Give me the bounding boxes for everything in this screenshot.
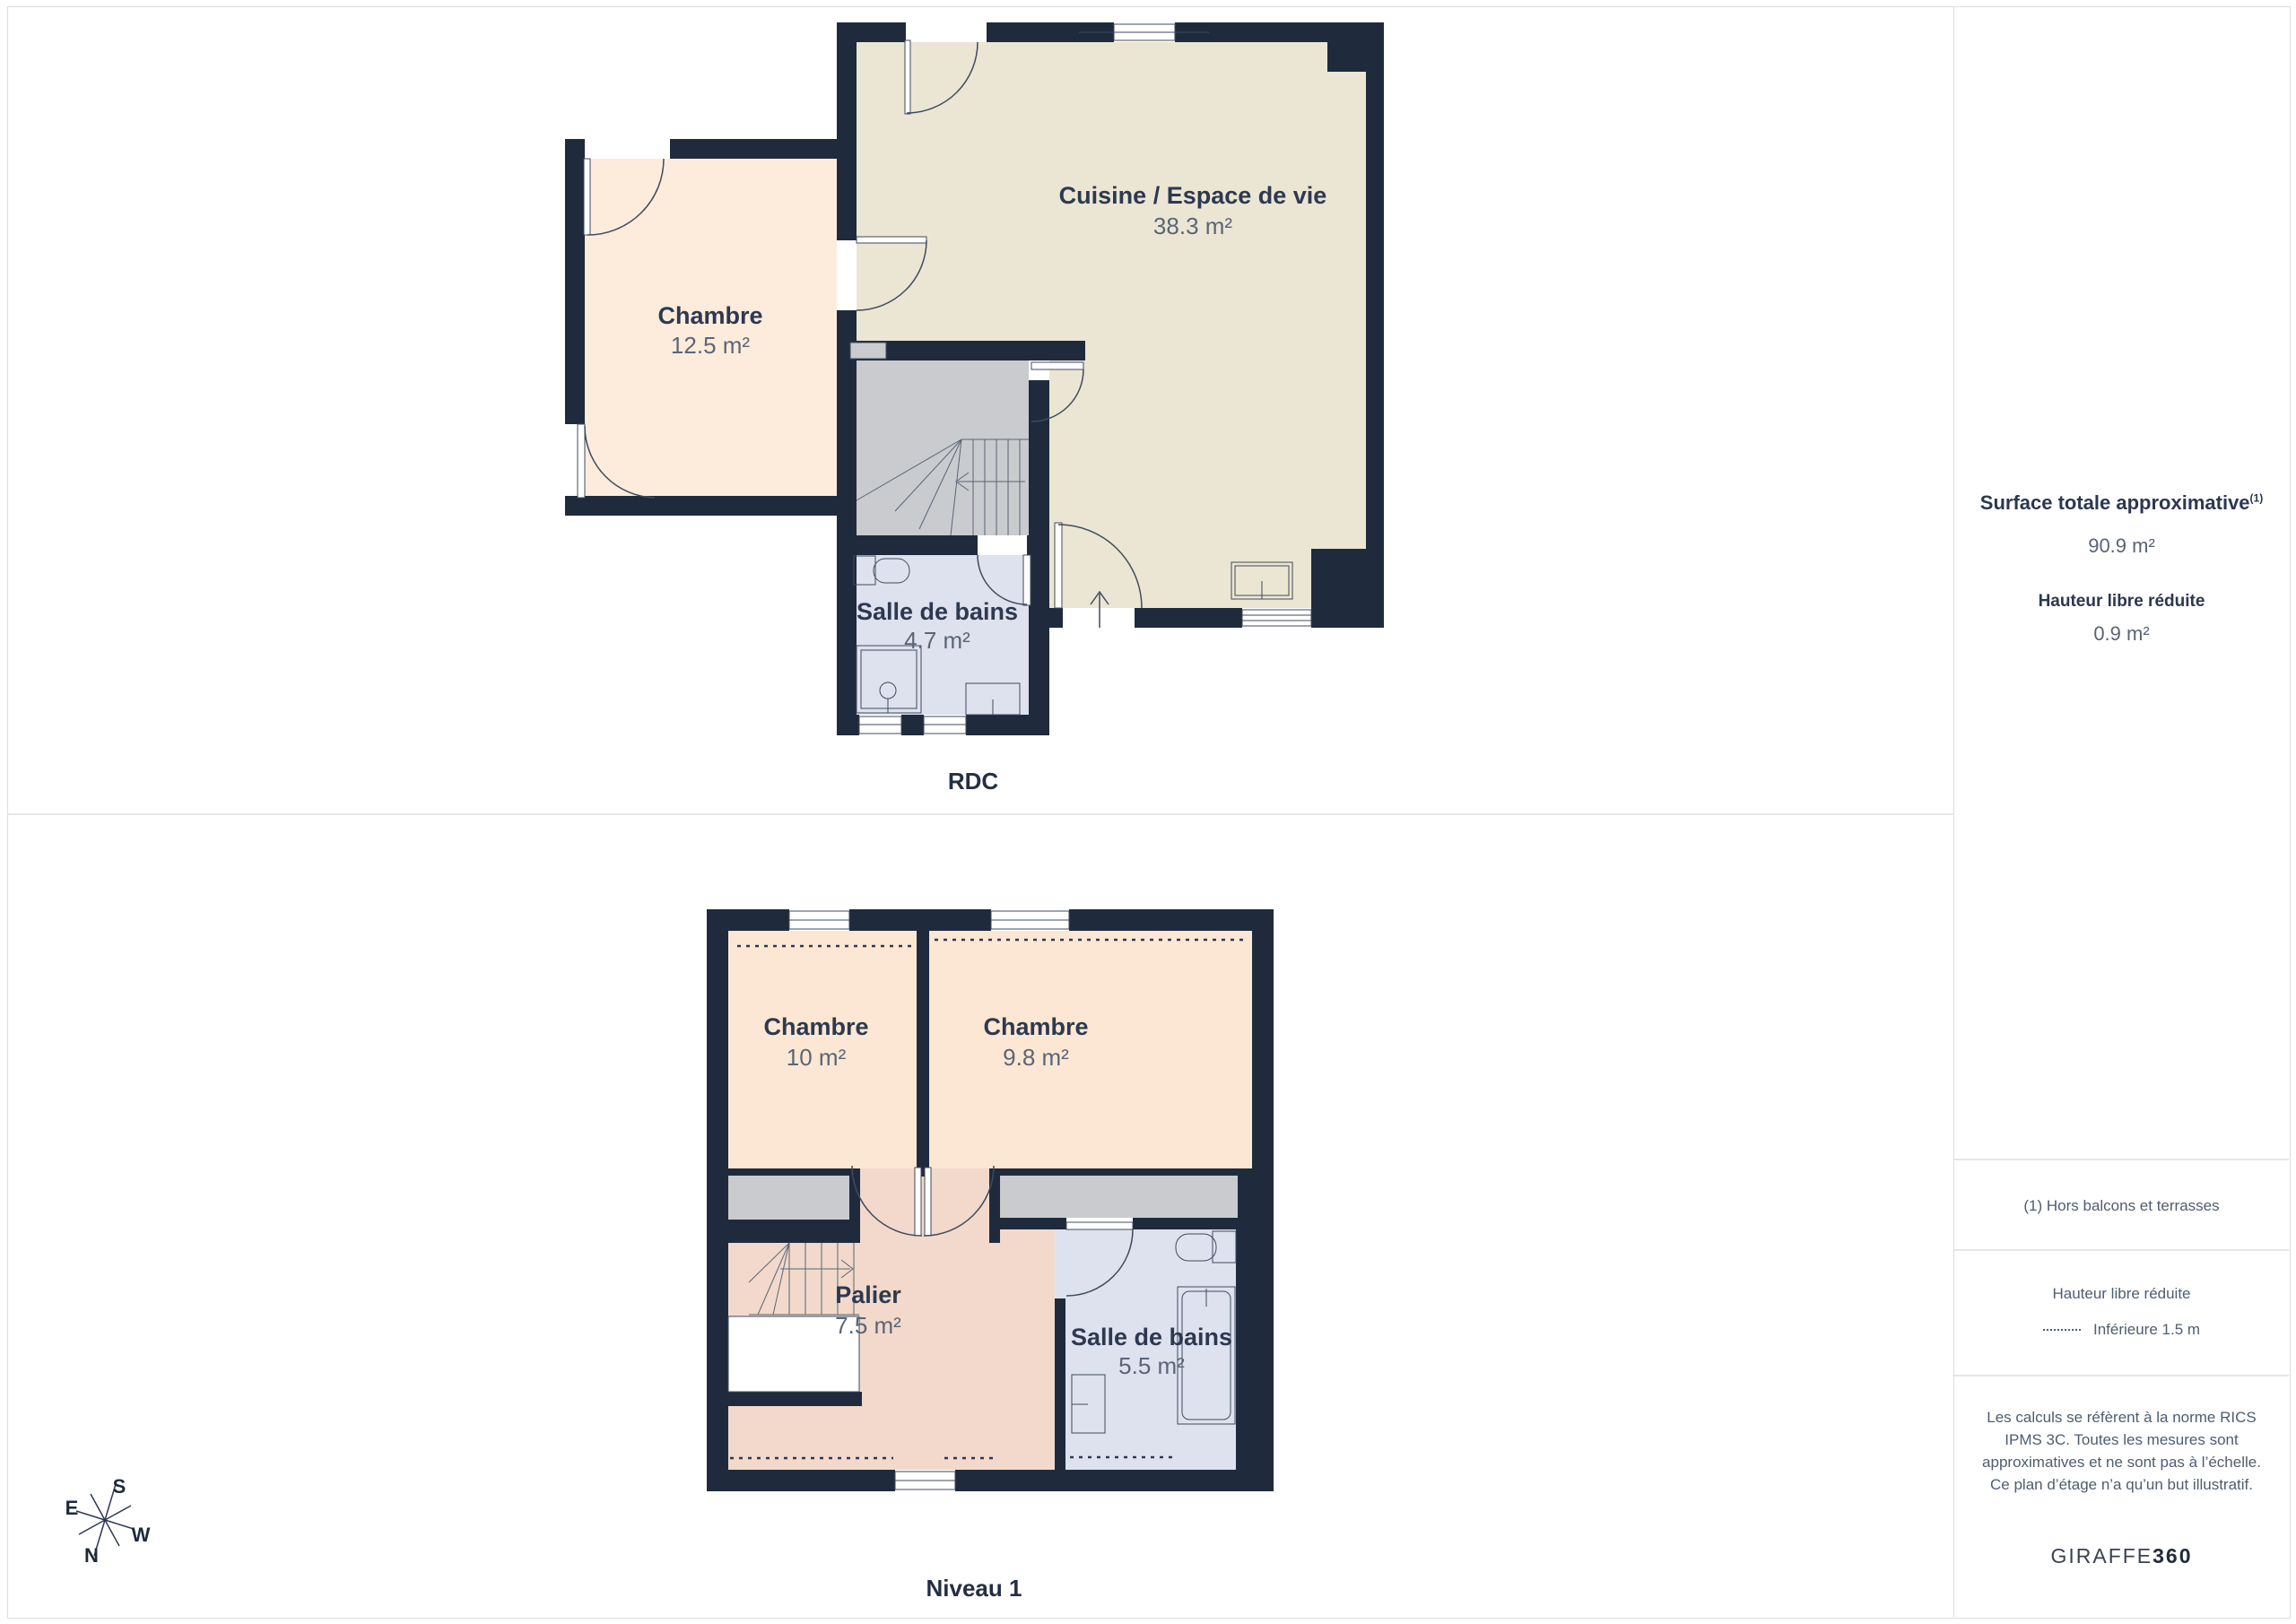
room-landing (1000, 1229, 1055, 1243)
window-icon (789, 911, 849, 929)
total-surface-title: Surface totale approximative(1) (1954, 491, 2289, 515)
sidebar-divider (1954, 1249, 2289, 1251)
room-bedroom-right (929, 931, 1252, 1168)
room-label: Chambre (763, 1013, 868, 1040)
floor-plan-niveau1: Chambre 10 m² Chambre 9.8 m² Palier 7.5 … (682, 897, 1300, 1524)
footnote-text: (1) Hors balcons et terrasses (1954, 1197, 2289, 1215)
dotted-line-icon (2043, 1329, 2081, 1331)
legend-title: Hauteur libre réduite (1954, 1285, 2289, 1303)
room-area-label: 38.3 m² (1153, 213, 1232, 239)
window-icon (859, 716, 901, 734)
floor-plan-rdc: Chambre 12.5 m² Cuisine / Espace de vie … (538, 9, 1417, 807)
window-icon (895, 1472, 955, 1489)
floor-plan-page: Chambre 12.5 m² Cuisine / Espace de vie … (0, 0, 2296, 1624)
sidebar-divider (1954, 1375, 2289, 1376)
compass-label-e: E (65, 1497, 79, 1519)
room-label: Palier (835, 1281, 901, 1308)
total-surface-title-text: Surface totale approximative (1980, 491, 2250, 514)
room-label: Chambre (983, 1013, 1088, 1040)
window-icon (991, 911, 1069, 929)
under-stairs-closet (850, 343, 886, 359)
room-area-label: 9.8 m² (1003, 1044, 1069, 1071)
legend-row: Inférieure 1.5 m (1954, 1321, 2289, 1339)
closet-left (728, 1176, 849, 1220)
floors-divider (8, 813, 1953, 815)
footnote-marker: (1) (2250, 492, 2264, 505)
compass-label-w: W (132, 1524, 151, 1546)
closet-right (1000, 1176, 1238, 1218)
floor-title-rdc: RDC (928, 768, 1018, 795)
window-icon (924, 716, 966, 734)
compass-label-s: S (113, 1475, 126, 1498)
window-icon (1242, 610, 1311, 626)
legend-label: Inférieure 1.5 m (2093, 1321, 2200, 1339)
room-area-label: 5.5 m² (1118, 1352, 1185, 1379)
reduced-height-title: Hauteur libre réduite (1954, 592, 2289, 612)
disclaimer-text: Les calculs se réfèrent à la norme RICS … (1973, 1406, 2270, 1496)
room-area-label: 7.5 m² (835, 1312, 901, 1339)
room-label: Cuisine / Espace de vie (1059, 182, 1327, 209)
brand-suffix: 360 (2152, 1544, 2192, 1568)
stairs-area (857, 360, 1029, 535)
compass-label-n: N (84, 1544, 99, 1567)
compass-rose: S E W N (49, 1471, 166, 1578)
room-area-label: 10 m² (787, 1044, 847, 1071)
giraffe360-logo: GIRAFFE360 (1954, 1544, 2289, 1568)
floor-title-niveau1: Niveau 1 (902, 1575, 1046, 1602)
room-area-label: 12.5 m² (671, 332, 750, 359)
room-area-label: 4.7 m² (904, 627, 970, 654)
room-label: Salle de bains (857, 598, 1018, 625)
room-label: Salle de bains (1071, 1324, 1232, 1350)
sidebar-divider (1954, 1159, 2289, 1160)
reduced-height-value: 0.9 m² (1954, 622, 2289, 646)
brand-name: GIRAFFE (2050, 1544, 2152, 1568)
room-label: Chambre (657, 302, 762, 329)
total-surface-value: 90.9 m² (1954, 534, 2289, 558)
